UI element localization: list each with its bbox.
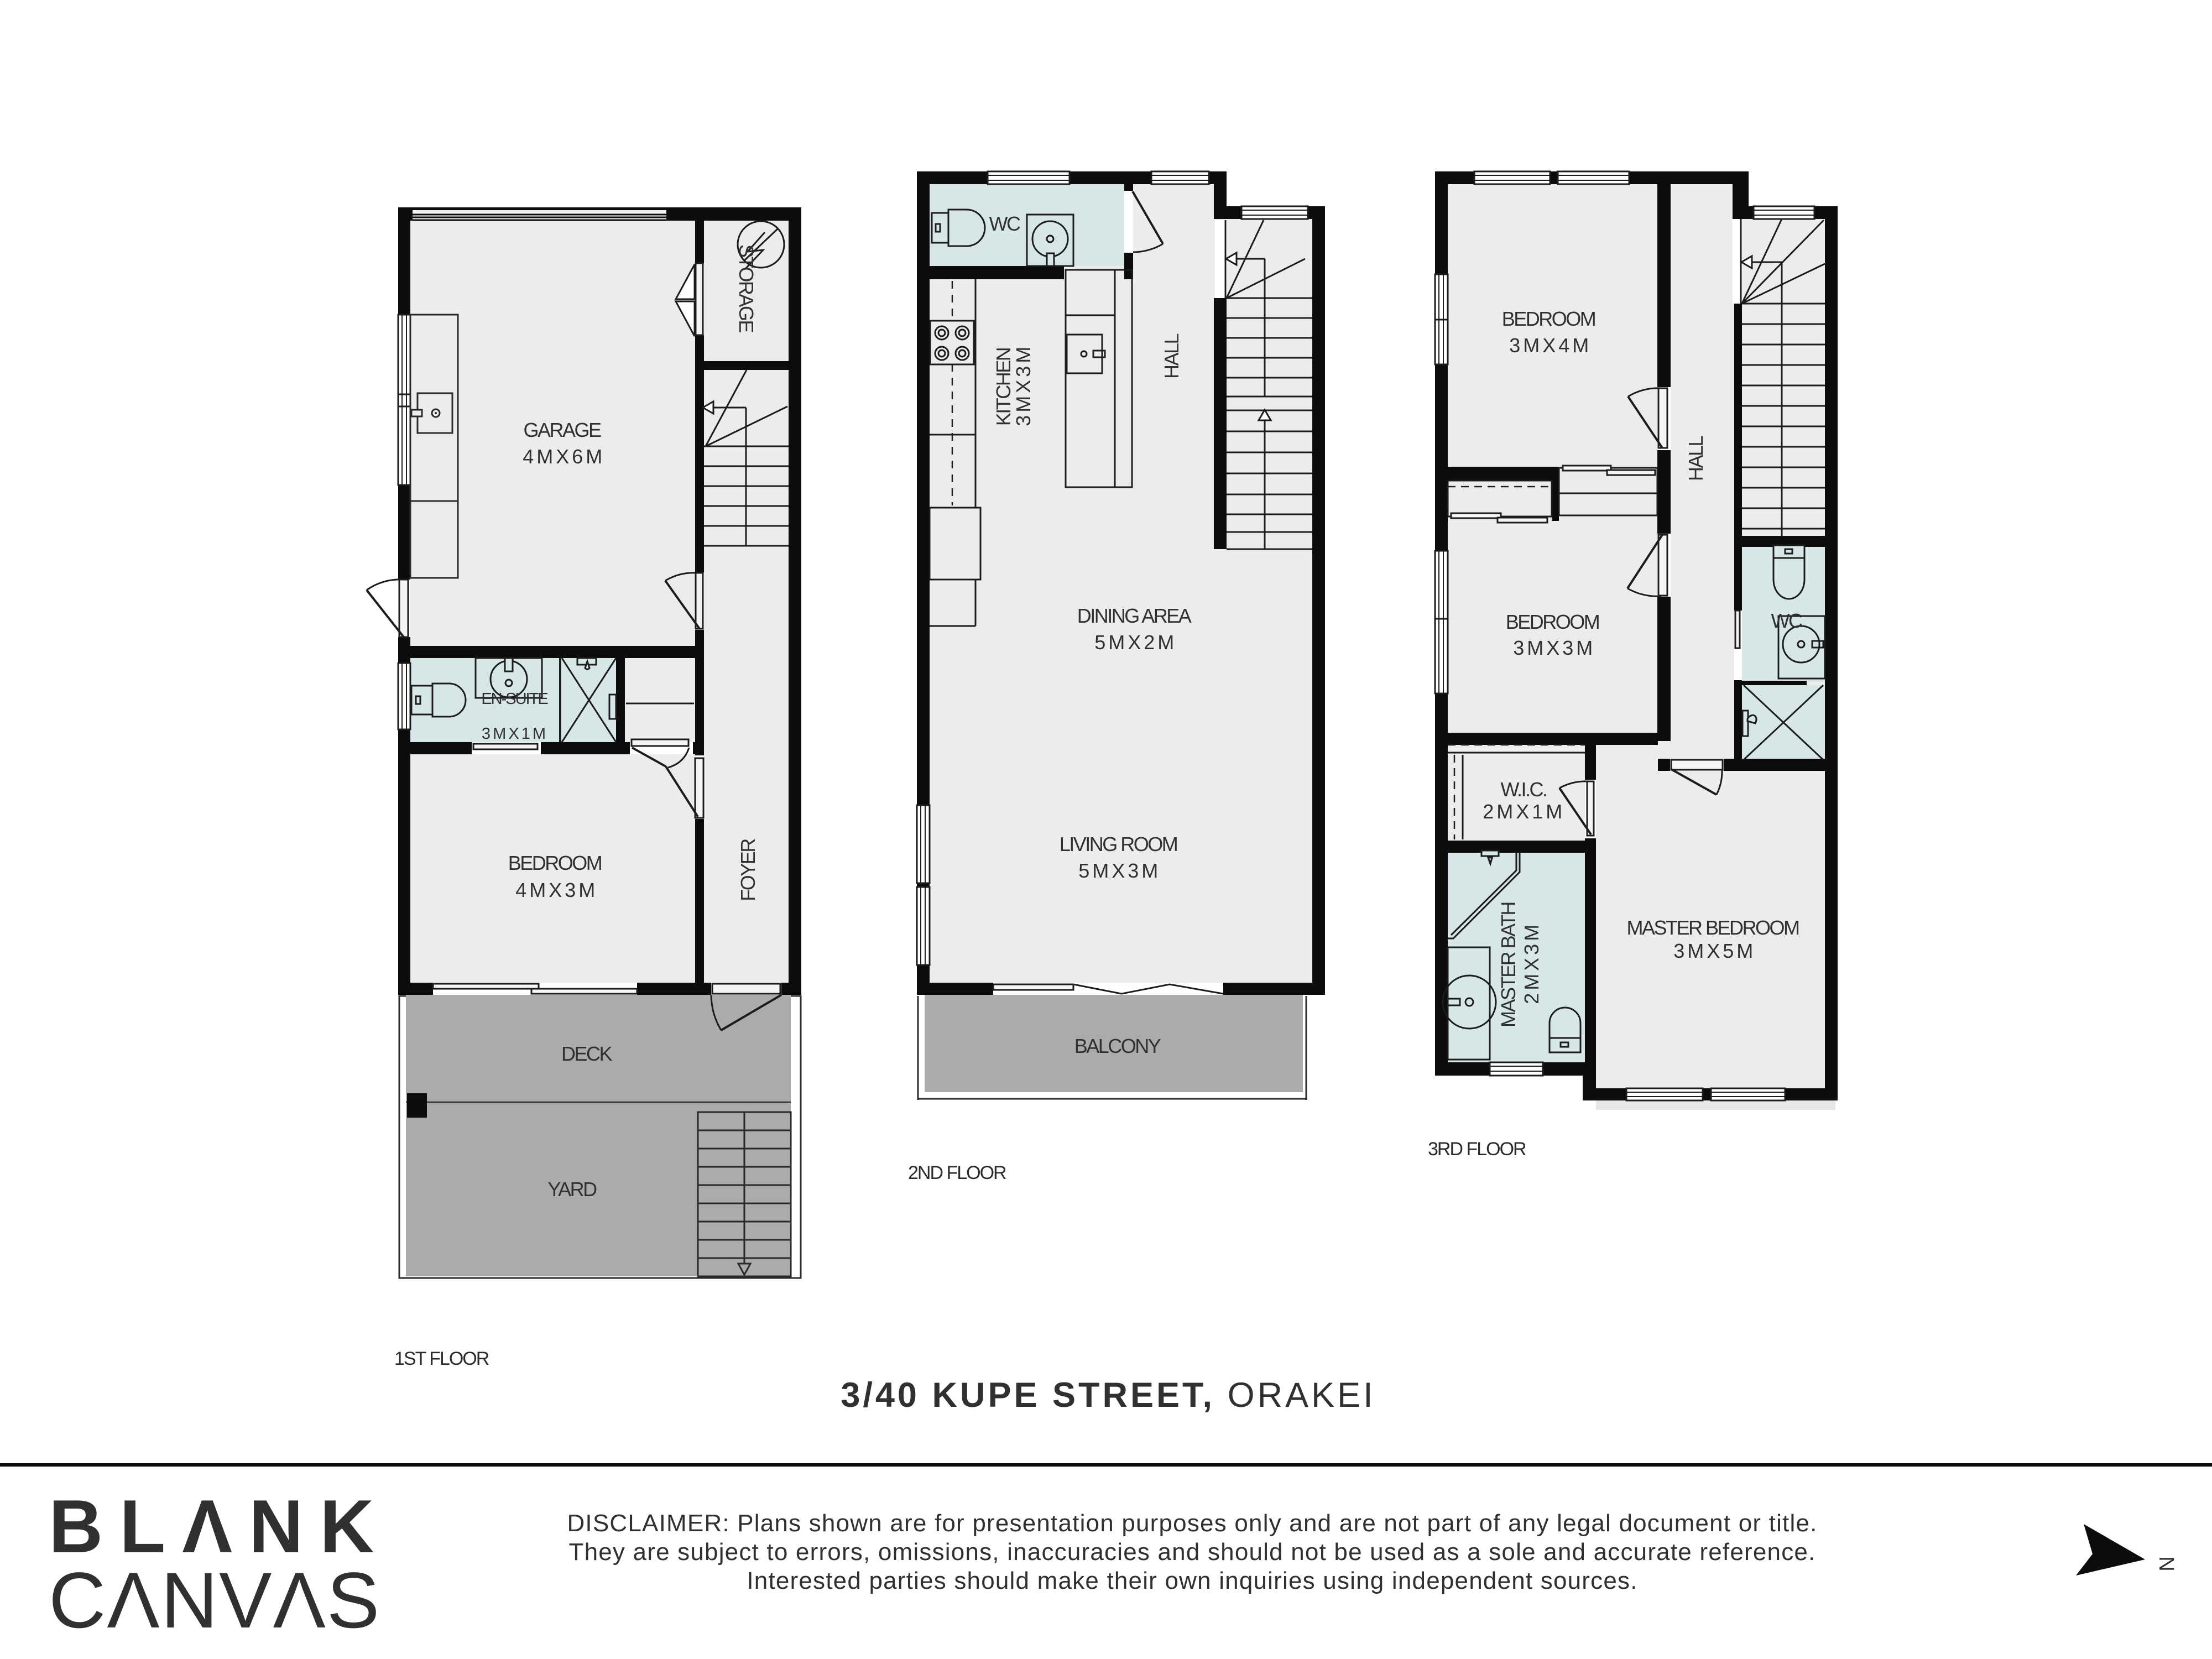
svg-text:HALL: HALL <box>1684 436 1707 482</box>
svg-text:YARD: YARD <box>547 1178 597 1201</box>
svg-text:HALL: HALL <box>1160 334 1183 379</box>
svg-text:BEDROOM: BEDROOM <box>1502 307 1595 330</box>
svg-text:BEDROOM: BEDROOM <box>1506 611 1599 633</box>
svg-text:3 M X 3 M: 3 M X 3 M <box>1012 348 1035 426</box>
svg-text:DISCLAIMER: Plans shown are fo: DISCLAIMER: Plans shown are for presenta… <box>567 1510 1817 1537</box>
svg-text:WC: WC <box>989 212 1020 235</box>
svg-text:3 M X 3 M: 3 M X 3 M <box>1513 637 1592 659</box>
svg-text:N: N <box>2154 1556 2178 1571</box>
svg-text:4 M X 3 M: 4 M X 3 M <box>515 879 594 901</box>
svg-text:3 M X 4 M: 3 M X 4 M <box>1509 334 1588 357</box>
svg-text:W.I.C.: W.I.C. <box>1501 778 1547 801</box>
svg-text:GARAGE: GARAGE <box>523 419 601 441</box>
svg-text:3RD FLOOR: 3RD FLOOR <box>1428 1139 1526 1160</box>
svg-text:DECK: DECK <box>561 1042 613 1065</box>
svg-text:KITCHEN: KITCHEN <box>992 348 1015 426</box>
svg-text:4 M X 6 M: 4 M X 6 M <box>523 445 601 468</box>
svg-text:2 M X 1 M: 2 M X 1 M <box>1483 800 1561 823</box>
svg-text:MASTER BEDROOM: MASTER BEDROOM <box>1626 916 1799 939</box>
svg-text:EN-SUITE: EN-SUITE <box>481 690 548 708</box>
svg-text:BALCONY: BALCONY <box>1074 1035 1161 1057</box>
svg-text:STORAGE: STORAGE <box>735 244 758 332</box>
svg-text:They are subject to errors, om: They are subject to errors, omissions, i… <box>569 1538 1816 1566</box>
svg-text:DINING AREA: DINING AREA <box>1077 604 1192 627</box>
svg-text:FOYER: FOYER <box>737 839 759 901</box>
svg-text:3 M X 1 M: 3 M X 1 M <box>482 725 545 743</box>
svg-text:3/40 KUPE STREET, ORAKEI: 3/40 KUPE STREET, ORAKEI <box>841 1376 1375 1415</box>
svg-text:CΛNVΛS: CΛNVΛS <box>49 1557 380 1645</box>
svg-text:MASTER BATH: MASTER BATH <box>1497 902 1520 1027</box>
svg-text:WC: WC <box>1771 609 1802 632</box>
svg-text:5 M X 2 M: 5 M X 2 M <box>1094 631 1173 654</box>
svg-text:Interested parties should make: Interested parties should make their own… <box>747 1567 1637 1594</box>
svg-text:3 M X 5 M: 3 M X 5 M <box>1673 940 1752 962</box>
svg-text:2ND FLOOR: 2ND FLOOR <box>908 1162 1006 1183</box>
svg-text:5 M X 3 M: 5 M X 3 M <box>1078 859 1157 882</box>
svg-text:2 M X 3 M: 2 M X 3 M <box>1520 926 1543 1004</box>
svg-text:LIVING ROOM: LIVING ROOM <box>1060 833 1177 855</box>
svg-text:1ST FLOOR: 1ST FLOOR <box>394 1348 489 1369</box>
svg-text:BEDROOM: BEDROOM <box>508 852 602 874</box>
svg-text:BLΛNK: BLΛNK <box>49 1484 390 1568</box>
